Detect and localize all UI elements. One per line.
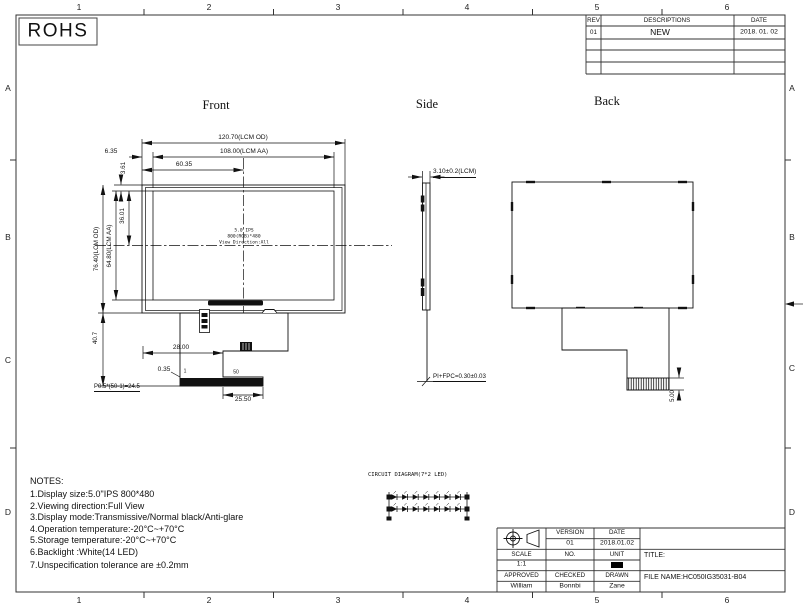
screen-viewdir-label: View Direction:All [219,241,269,246]
grid-row-label: D [5,508,11,517]
grid-row-label: D [789,508,795,517]
note-item: 7.Unspecification tolerance are ±0.2mm [30,561,189,570]
projection-symbol-icon [504,529,540,548]
tb-version-value: 01 [566,541,574,548]
front-view-title: Front [202,99,229,112]
grid-col-label: 6 [725,3,730,12]
rev-header-desc: DESCRIPTIONS [644,17,690,23]
tb-date-label: DATE [609,530,625,536]
dim-top-margin: 3.61 [121,161,127,173]
side-view-drawing [417,183,437,386]
note-item: 4.Operation temperature:-20°C~+70°C [30,525,184,534]
dim-fpc-drop: 40.7 [93,332,99,344]
rev-row-date: 2018. 01. 02 [740,29,778,36]
dim-lcm-od-height: 76.40(LCM OD) [94,227,100,271]
tb-approved-value: William [511,583,533,590]
dim-lcm-aa-height: 64.80(LCM AA) [107,224,113,267]
back-view-title: Back [594,95,620,108]
dim-half-width: 60.35 [176,162,192,169]
side-view-title: Side [416,98,438,111]
title-block-grid [497,528,785,592]
tb-title-label: TITLE: [644,552,665,559]
grid-col-label: 6 [725,596,730,605]
circuit-diagram-drawing [387,491,470,521]
dim-lcm-thickness: 3.10±0.2(LCM) [433,169,476,178]
grid-row-label: A [789,84,795,93]
tb-scale-label: SCALE [511,552,531,558]
note-item: 1.Display size:5.0"IPS 800*480 [30,490,154,499]
dim-pin-margin: 0.35 [158,367,171,374]
revision-table-grid [586,15,785,74]
grid-col-label: 1 [77,3,82,12]
dim-half-height: 36.01 [120,208,126,224]
screen-size-label: 5.0 IPS [234,229,253,234]
rev-header-rev: REV [587,17,600,23]
dim-pin-pitch-formula: P0.5*(50-1)=24.5 [94,384,140,392]
tb-version-label: VERSION [556,530,584,536]
dim-left-margin: 6.35 [105,149,118,156]
dim-pi-fpc-thickness: PI+FPC=0.30±0.03 [433,374,486,382]
dim-fpc-offset: 28.00 [173,345,189,352]
grid-row-label: B [5,233,11,242]
grid-col-label: 3 [336,3,341,12]
grid-col-label: 2 [207,3,212,12]
tb-date-value: 2018.01.02 [600,541,634,548]
notes-title: NOTES: [30,477,64,486]
tb-checked-label: CHECKED [555,573,585,579]
note-item: 5.Storage temperature:-20°C~+70°C [30,536,176,545]
tb-file-name: FILE NAME:HC050IG35031-B04 [644,574,746,581]
pin-first-label: 1 [184,370,187,375]
note-item: 3.Display mode:Transmissive/Normal black… [30,513,243,522]
grid-row-label: B [789,233,795,242]
rev-row-rev: 01 [590,29,597,35]
note-item: 2.Viewing direction:Full View [30,502,144,511]
grid-row-label: A [5,84,11,93]
circuit-diagram-title: CIRCUIT DIAGRAM(7*2 LED) [368,473,447,479]
grid-row-label: C [5,356,11,365]
tb-unit-label: UNIT [610,552,624,558]
dim-connector-width: 25.50 [235,397,251,404]
dim-lcm-od-width: 120.70(LCM OD) [218,135,268,142]
rev-header-date: DATE [751,17,767,23]
note-item: 6.Backlight :White(14 LED) [30,548,138,557]
tb-approved-label: APPROVED [504,573,538,579]
tb-unit-value: mm [611,562,623,568]
drawing-sheet: 1 2 3 4 5 6 1 2 3 4 5 6 A B C D A B C D … [0,0,808,609]
screen-resolution-label: 800(RGB)*480 [227,235,260,240]
pin-last-label: 50 [233,371,239,376]
grid-col-label: 1 [77,596,82,605]
dim-connector-height: 5.00 [670,390,676,402]
tb-checked-value: Bonnbi [559,583,580,590]
back-view-drawing [512,182,693,390]
dim-lcm-aa-width: 108.00(LCM AA) [220,149,268,156]
grid-col-label: 2 [207,596,212,605]
tb-no-label: NO. [564,552,575,558]
grid-row-label: C [789,364,795,373]
tb-drawn-label: DRAWN [605,573,628,579]
tb-scale-value: 1:1 [517,562,526,569]
rohs-label: ROHS [28,22,89,41]
front-view-drawing [95,158,392,386]
tb-drawn-value: Zane [609,583,625,590]
grid-col-label: 5 [595,3,600,12]
grid-col-label: 4 [465,3,470,12]
rev-row-desc: NEW [650,28,670,37]
grid-col-label: 5 [595,596,600,605]
grid-col-label: 4 [465,596,470,605]
grid-col-label: 3 [336,596,341,605]
